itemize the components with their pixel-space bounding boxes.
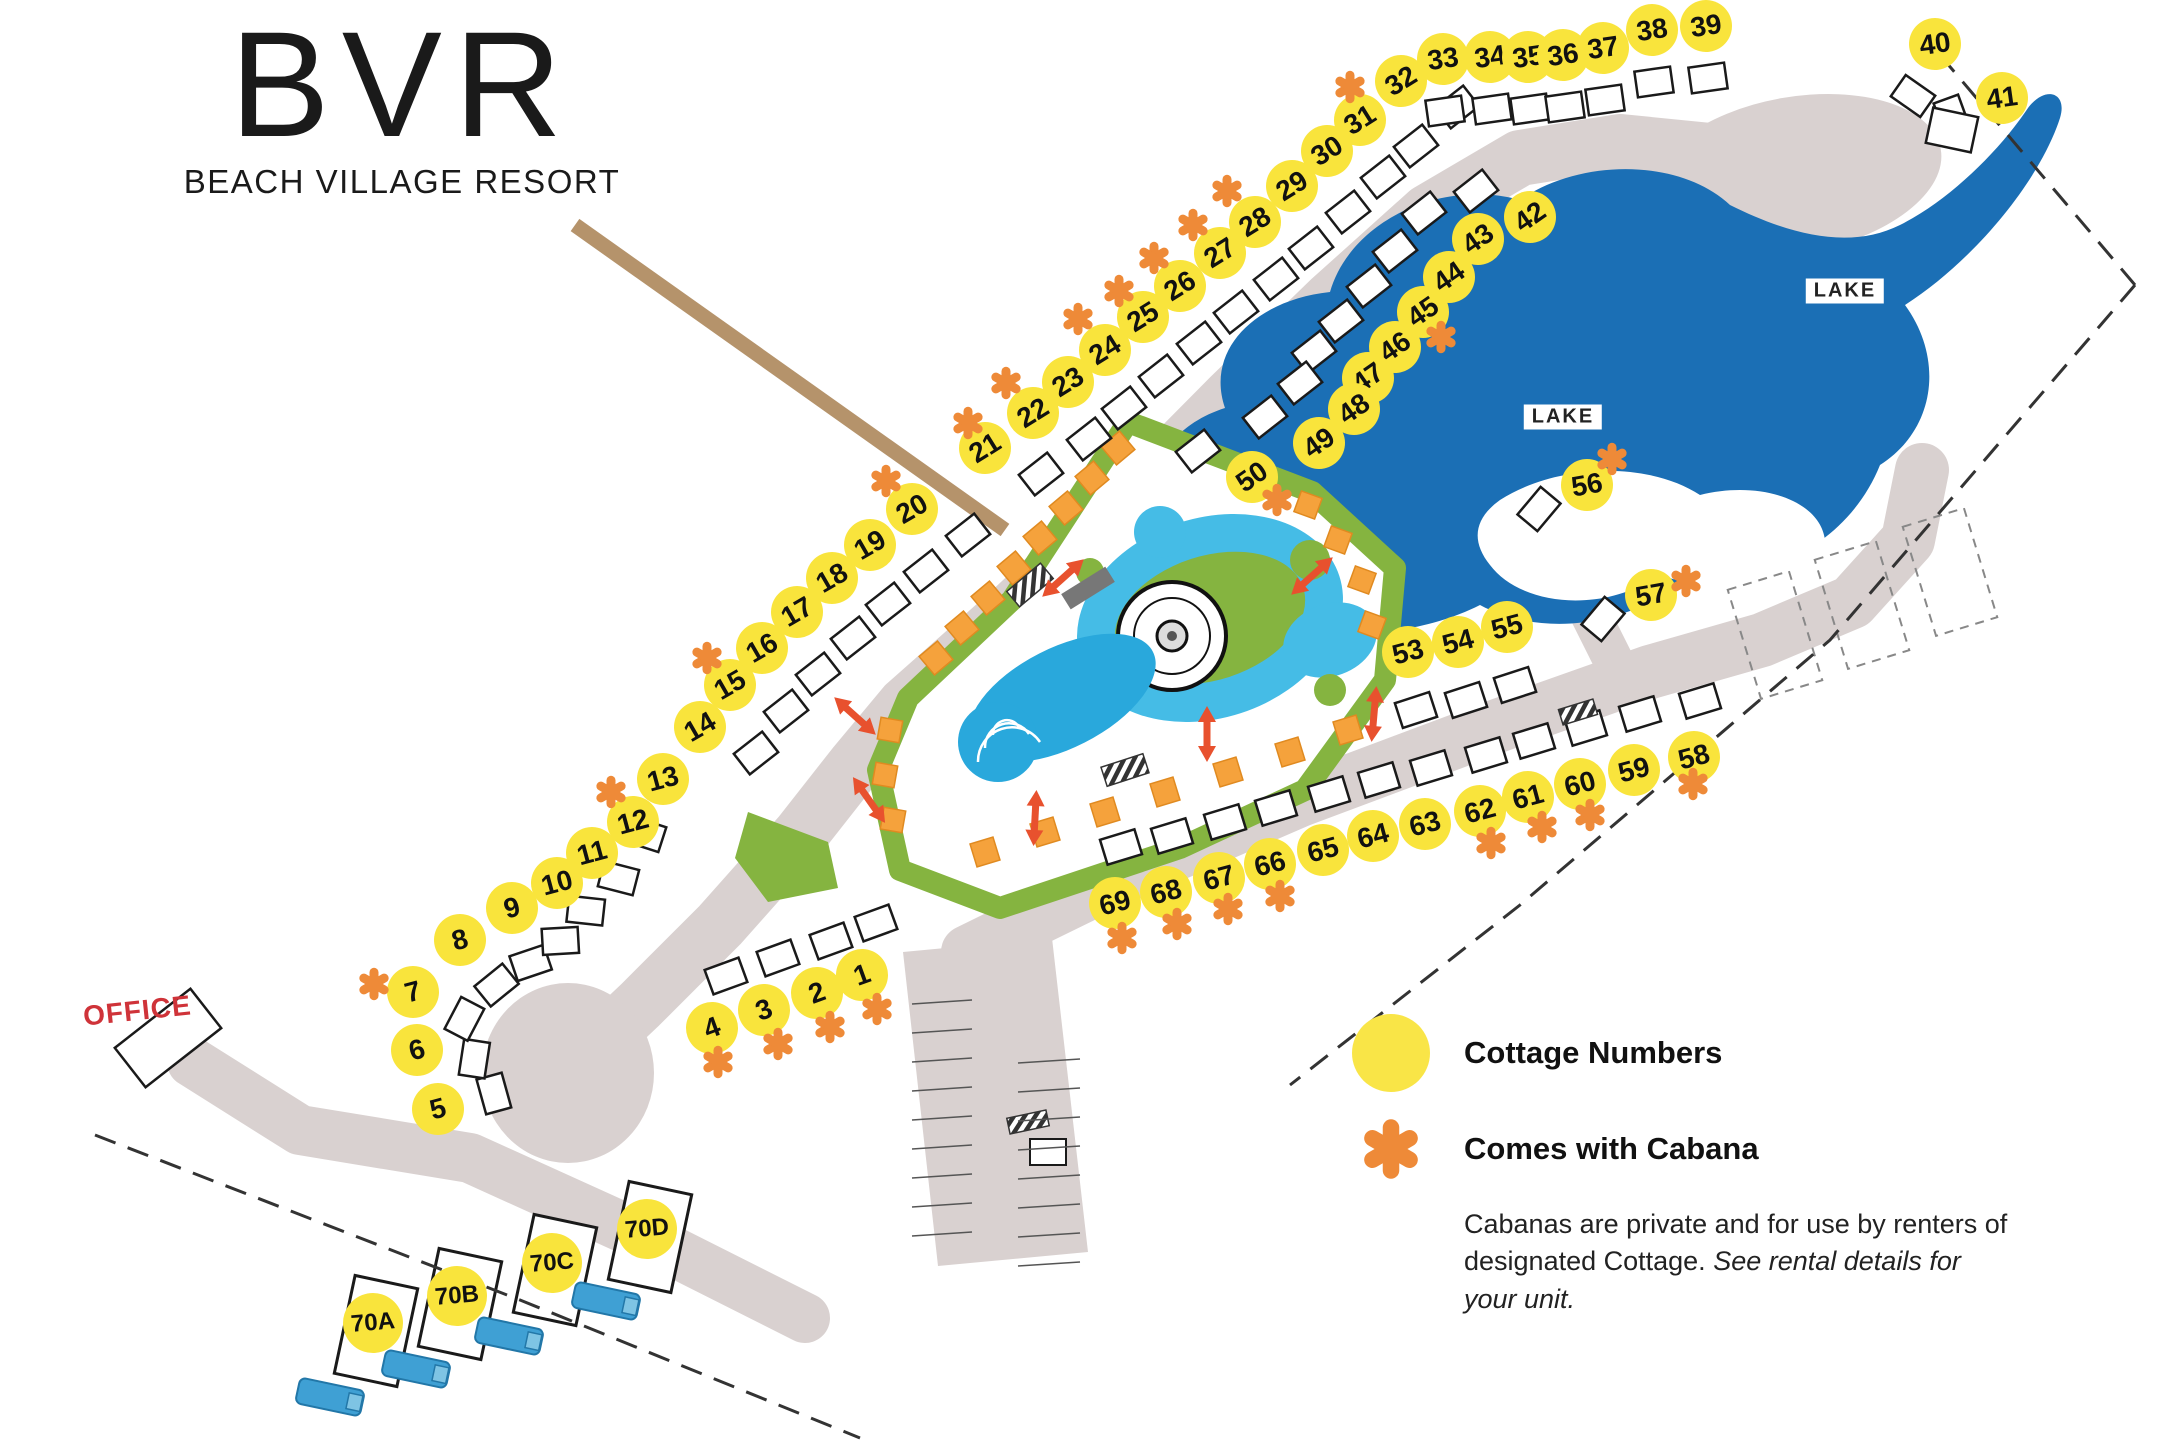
cottage-number: 14 — [679, 705, 722, 748]
cottage-building — [1326, 191, 1370, 234]
cottage-number: 42 — [1508, 195, 1552, 239]
cottage-number: 13 — [644, 760, 682, 799]
cabana-asterisk-25 — [1101, 273, 1137, 309]
cottage-number: 9 — [500, 891, 523, 926]
cottage-number: 54 — [1439, 623, 1477, 662]
cabana-asterisk-45 — [1423, 319, 1459, 355]
cottage-building — [474, 964, 518, 1007]
cabana-asterisk-58 — [1675, 766, 1711, 802]
cottage-building — [445, 997, 485, 1041]
cabana-asterisk-60 — [1572, 797, 1608, 833]
lake-label-1: LAKE — [1524, 405, 1602, 430]
cabana-asterisk-68 — [1159, 906, 1195, 942]
cottage-number: 29 — [1270, 164, 1313, 208]
cottage-building — [1545, 92, 1584, 123]
cottage-number: 40 — [1917, 26, 1952, 62]
cottage-number: 38 — [1634, 12, 1669, 48]
cabana-asterisk-61 — [1524, 809, 1560, 845]
cottage-building — [1688, 63, 1727, 94]
cabana-asterisk-12 — [593, 774, 629, 810]
cottage-number: 11 — [574, 834, 611, 873]
cottage-number: 19 — [849, 523, 892, 566]
cottage-number: 70A — [350, 1307, 396, 1339]
yellow-circle-icon — [1352, 1014, 1430, 1092]
cottage-building — [757, 940, 800, 977]
cottage-building — [1361, 156, 1405, 199]
cottage-number: 17 — [776, 590, 819, 633]
cottage-number: 32 — [1379, 59, 1422, 103]
cottage-number: 70B — [434, 1280, 480, 1312]
cottage-number: 16 — [741, 626, 784, 669]
cottage-building — [1394, 125, 1438, 168]
legend-note: Cabanas are private and for use by rente… — [1464, 1206, 2009, 1318]
cottage-number: 48 — [1332, 387, 1376, 431]
cottage-building — [1585, 85, 1624, 116]
map-legend: Cottage Numbers Comes with Cabana Cabana… — [1352, 1014, 2012, 1318]
cottage-number-symbol — [1352, 1014, 1430, 1092]
cottage-building — [831, 617, 875, 660]
logo-abbr: BVR — [128, 8, 676, 161]
cottage-number: 41 — [1984, 80, 2019, 116]
cottage-number: 23 — [1046, 360, 1089, 404]
cottage-number: 49 — [1297, 421, 1341, 465]
lake-label-2: LAKE — [1806, 279, 1884, 304]
cottage-number: 65 — [1304, 831, 1342, 870]
cottage-number: 64 — [1354, 817, 1392, 856]
cabana-asterisk-1 — [859, 991, 895, 1027]
cottage-number: 1 — [849, 957, 875, 992]
cottage-number: 69 — [1096, 884, 1134, 923]
cottage-number: 70C — [529, 1247, 575, 1279]
cabana-asterisk-27 — [1175, 207, 1211, 243]
cottage-building — [1472, 94, 1511, 125]
cabana-asterisk-28 — [1209, 173, 1245, 209]
cottage-number: 7 — [401, 975, 424, 1010]
cottage-number: 36 — [1545, 37, 1580, 73]
cottage-number: 70D — [624, 1213, 670, 1245]
cabana-asterisk-4 — [700, 1044, 736, 1080]
resort-site-map: BVR BEACH VILLAGE RESORT OFFICE 1 2 3 4 … — [0, 0, 2160, 1440]
legend-cottage-label: Cottage Numbers — [1464, 1035, 1722, 1071]
cabana-asterisk-66 — [1262, 878, 1298, 914]
cabana-asterisk-26 — [1136, 240, 1172, 276]
cottage-building — [866, 583, 910, 626]
cabana-asterisk-7 — [356, 966, 392, 1002]
cabana-asterisk-2 — [812, 1009, 848, 1045]
cottage-building — [1019, 453, 1063, 496]
cottage-number: 53 — [1389, 633, 1427, 672]
cottage-number: 10 — [538, 864, 576, 903]
cottage-number: 4 — [699, 1010, 725, 1045]
cabana-asterisk-icon — [1352, 1116, 1430, 1182]
cottage-building — [796, 653, 840, 696]
cottage-number: 8 — [448, 923, 471, 958]
cottage-building — [855, 905, 898, 942]
cottage-number: 55 — [1488, 608, 1526, 647]
resort-logo: BVR BEACH VILLAGE RESORT — [128, 8, 676, 201]
logo-name: BEACH VILLAGE RESORT — [128, 163, 676, 201]
rv-icon — [295, 1377, 365, 1416]
cottage-number: 57 — [1633, 577, 1669, 614]
cottage-number: 2 — [804, 975, 830, 1010]
legend-cabana-label: Comes with Cabana — [1464, 1131, 1759, 1167]
cottage-number: 37 — [1585, 30, 1620, 66]
cottage-number: 5 — [426, 1092, 449, 1127]
cabana-asterisk-62 — [1473, 825, 1509, 861]
cabana-asterisk-15 — [689, 640, 725, 676]
cottage-building — [1139, 355, 1183, 398]
cottage-building — [1634, 67, 1673, 98]
cottage-building — [1289, 227, 1333, 270]
cottage-building — [1510, 94, 1549, 125]
cabana-asterisk-50 — [1259, 482, 1295, 518]
cabana-asterisk-22 — [988, 365, 1024, 401]
cottage-building — [1177, 322, 1221, 365]
cottage-building — [542, 927, 579, 955]
cabana-asterisk-57 — [1668, 563, 1704, 599]
cottage-number: 39 — [1688, 8, 1723, 44]
cottage-building — [764, 690, 808, 733]
cabana-asterisk-56 — [1594, 441, 1630, 477]
cabana-asterisk-67 — [1210, 891, 1246, 927]
cabana-asterisk-3 — [760, 1026, 796, 1062]
cabana-asterisk-32 — [1332, 69, 1368, 105]
cabana-asterisk-69 — [1104, 920, 1140, 956]
cottage-building — [1425, 96, 1464, 127]
cabana-asterisk-21 — [950, 405, 986, 441]
cottage-building — [1254, 258, 1298, 301]
cottage-building — [459, 1039, 490, 1079]
cottage-number: 63 — [1406, 805, 1444, 844]
legend-row-cabana: Comes with Cabana — [1352, 1116, 2012, 1182]
cottage-number: 3 — [751, 992, 777, 1027]
cabana-asterisk-20 — [868, 463, 904, 499]
legend-row-cottage: Cottage Numbers — [1352, 1014, 2012, 1092]
cabana-asterisk-24 — [1060, 301, 1096, 337]
cottage-building — [904, 550, 948, 593]
cottage-number: 59 — [1615, 751, 1653, 790]
cottage-number: 6 — [405, 1033, 428, 1068]
cottage-number: 18 — [811, 556, 854, 599]
cottage-building — [734, 732, 778, 775]
cottage-number: 33 — [1425, 41, 1460, 77]
rv-icon — [571, 1281, 641, 1320]
